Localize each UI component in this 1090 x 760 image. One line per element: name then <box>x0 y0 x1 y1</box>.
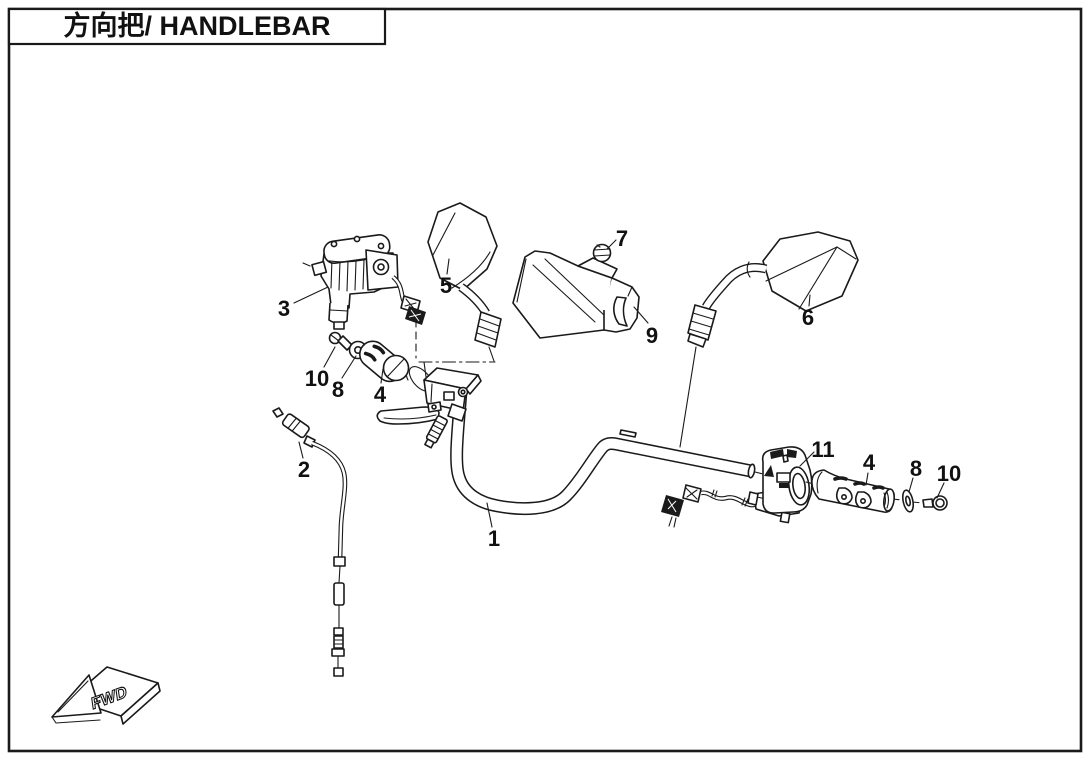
page-title: 方向把/ HANDLEBAR <box>64 10 331 41</box>
callout-8-right: 8 <box>910 456 922 481</box>
callout-8-left: 8 <box>332 377 344 402</box>
callout-2: 2 <box>298 457 310 482</box>
callout-5: 5 <box>440 273 452 298</box>
callout-7: 7 <box>616 226 628 251</box>
callout-10-right: 10 <box>937 461 961 486</box>
callout-4-left: 4 <box>374 382 387 407</box>
callout-10-left: 10 <box>305 366 329 391</box>
parts-diagram-page: 方向把/ HANDLEBAR <box>0 0 1090 760</box>
callout-6: 6 <box>802 305 814 330</box>
handlebar-exploded-diagram: 方向把/ HANDLEBAR <box>0 0 1090 760</box>
page-border <box>9 9 1081 751</box>
callout-1: 1 <box>488 526 500 551</box>
callout-4-right: 4 <box>863 450 876 475</box>
screw-7 <box>594 245 611 262</box>
callout-3: 3 <box>278 296 290 321</box>
callout-9: 9 <box>646 323 658 348</box>
callout-11: 11 <box>811 437 834 462</box>
